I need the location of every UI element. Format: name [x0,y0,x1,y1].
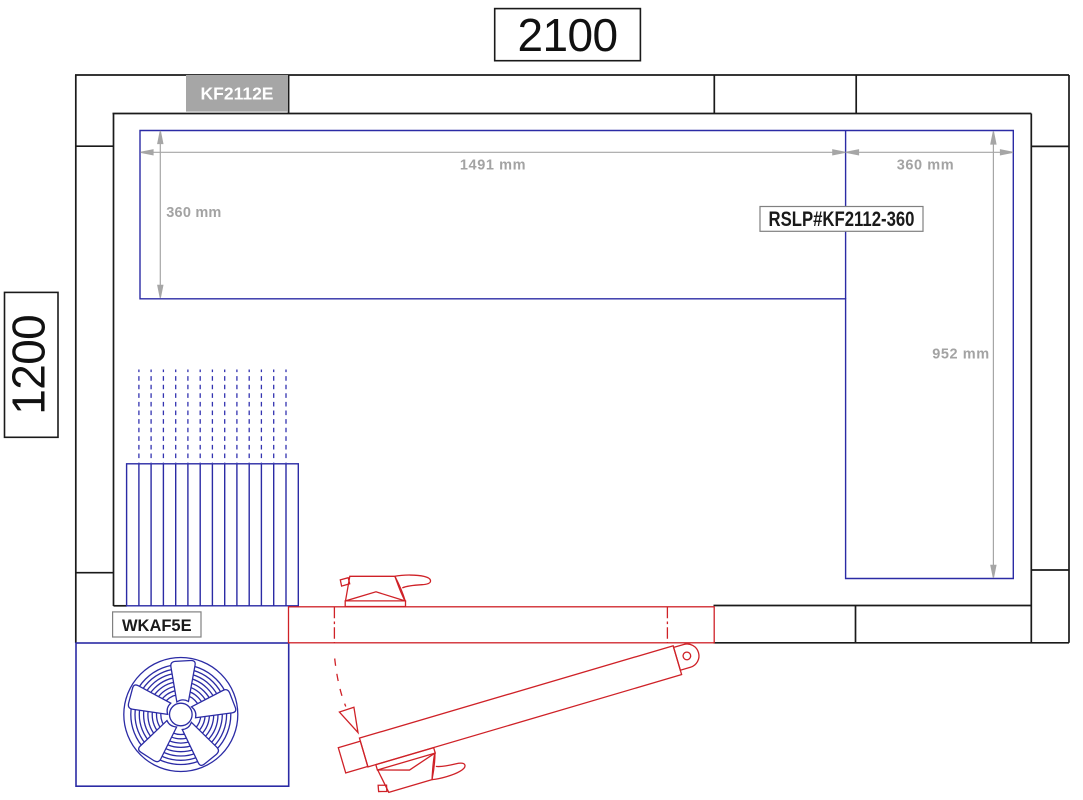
svg-text:1491 mm: 1491 mm [460,158,526,174]
svg-text:1200: 1200 [3,315,55,415]
svg-text:360 mm: 360 mm [897,158,955,174]
svg-text:360 mm: 360 mm [166,205,221,221]
svg-text:2100: 2100 [518,9,618,61]
svg-text:952 mm: 952 mm [932,347,990,363]
svg-text:WKAF5E: WKAF5E [122,617,192,635]
svg-text:KF2112E: KF2112E [201,84,274,104]
svg-text:RSLP#KF2112-360: RSLP#KF2112-360 [769,208,915,231]
